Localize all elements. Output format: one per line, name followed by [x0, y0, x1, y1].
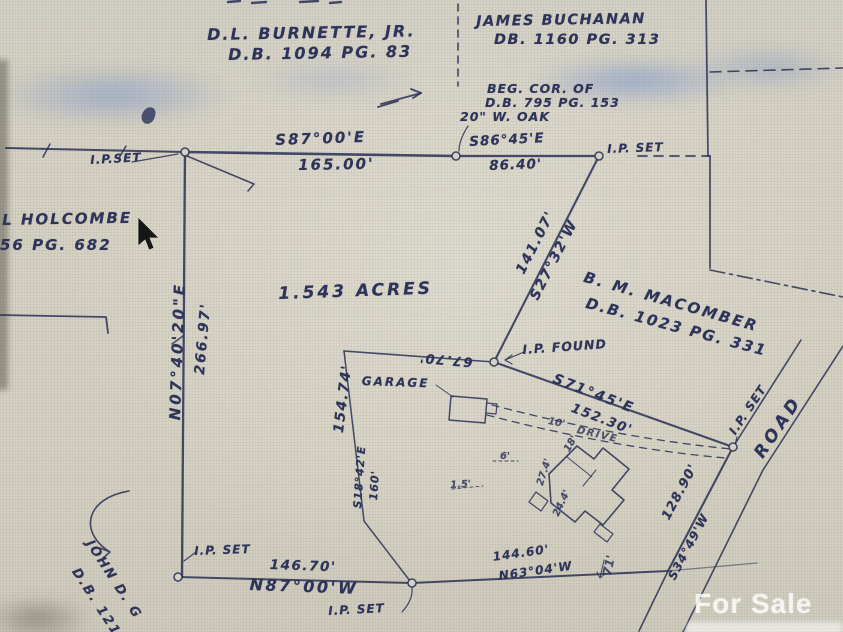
buchanan-east-line — [706, 0, 708, 156]
monument-circle — [408, 579, 416, 587]
monument-circle — [595, 152, 603, 160]
house-dim-label: 6' — [500, 452, 510, 462]
beg-cor-arrow — [378, 93, 421, 107]
ip-set-south-leader — [402, 588, 412, 612]
beg-cor-note-2: D.B. 795 PG. 153 — [485, 97, 620, 110]
monument-circle — [181, 148, 189, 156]
adjoiner-holcombe-deed: 56 PG. 682 — [0, 238, 112, 253]
ip-set-ne-label: I.P. SET — [607, 141, 664, 155]
distance-north-2: 86.40' — [489, 158, 542, 173]
ip-set-sw-label: I.P. SET — [194, 543, 251, 557]
porch-outline — [529, 492, 548, 511]
north-line-extension — [6, 148, 185, 152]
ip-set-south-label: I.P. SET — [328, 602, 385, 617]
adjoiner-buchanan-deed: DB. 1160 PG. 313 — [494, 33, 660, 48]
house-dim-label: 1.5' — [450, 480, 471, 491]
bearing-north-1: S87°00'E — [275, 130, 366, 148]
ip-set-nw-label: I.P.SET — [90, 151, 142, 166]
cursor-arrow-icon — [138, 217, 159, 250]
scanned-survey-plat: D.L. BURNETTE, JR. D.B. 1094 PG. 83 JAME… — [0, 0, 843, 632]
garage-outline — [449, 396, 487, 423]
adjoiner-buchanan-name: JAMES BUCHANAN — [476, 12, 646, 29]
monument-circle — [729, 443, 737, 451]
tie-line-nw — [187, 156, 254, 191]
house-interior-line — [567, 457, 596, 486]
beg-cor-note-1: BEG. COR. OF — [487, 83, 594, 96]
beg-cor-note-3: 20" W. OAK — [460, 111, 550, 124]
distance-interior: 160' — [368, 470, 381, 501]
bearing-south-a: N87°00'W — [249, 577, 358, 597]
holcombe-parcel-line — [0, 315, 108, 333]
adjoiner-burnette-name: D.L. BURNETTE, JR. — [207, 23, 416, 43]
for-sale-watermark: For Sale — [694, 588, 812, 620]
garage-leader-line — [436, 385, 453, 397]
top-right-dashed-line — [710, 68, 843, 72]
monument-circle — [174, 573, 182, 581]
adjoiner-holcombe-name: L HOLCOMBE — [2, 211, 132, 228]
porch-outline — [594, 524, 613, 542]
cut-off-watermark-line — [686, 622, 843, 632]
cut-off-text-strokes — [228, 1, 341, 3]
mouse-cursor — [136, 216, 162, 254]
distance-north-1: 165.00' — [298, 157, 375, 173]
monument-circle — [452, 152, 460, 160]
oak-leader-line — [459, 126, 468, 151]
macomber-north-dashdot — [710, 270, 843, 297]
ip-found-leader — [505, 352, 524, 364]
monument-circle — [490, 358, 498, 366]
garage-label: GARAGE — [362, 375, 430, 389]
distance-south-a: 146.70' — [270, 559, 337, 575]
adjoiner-burnette-deed: D.B. 1094 PG. 83 — [228, 44, 412, 63]
